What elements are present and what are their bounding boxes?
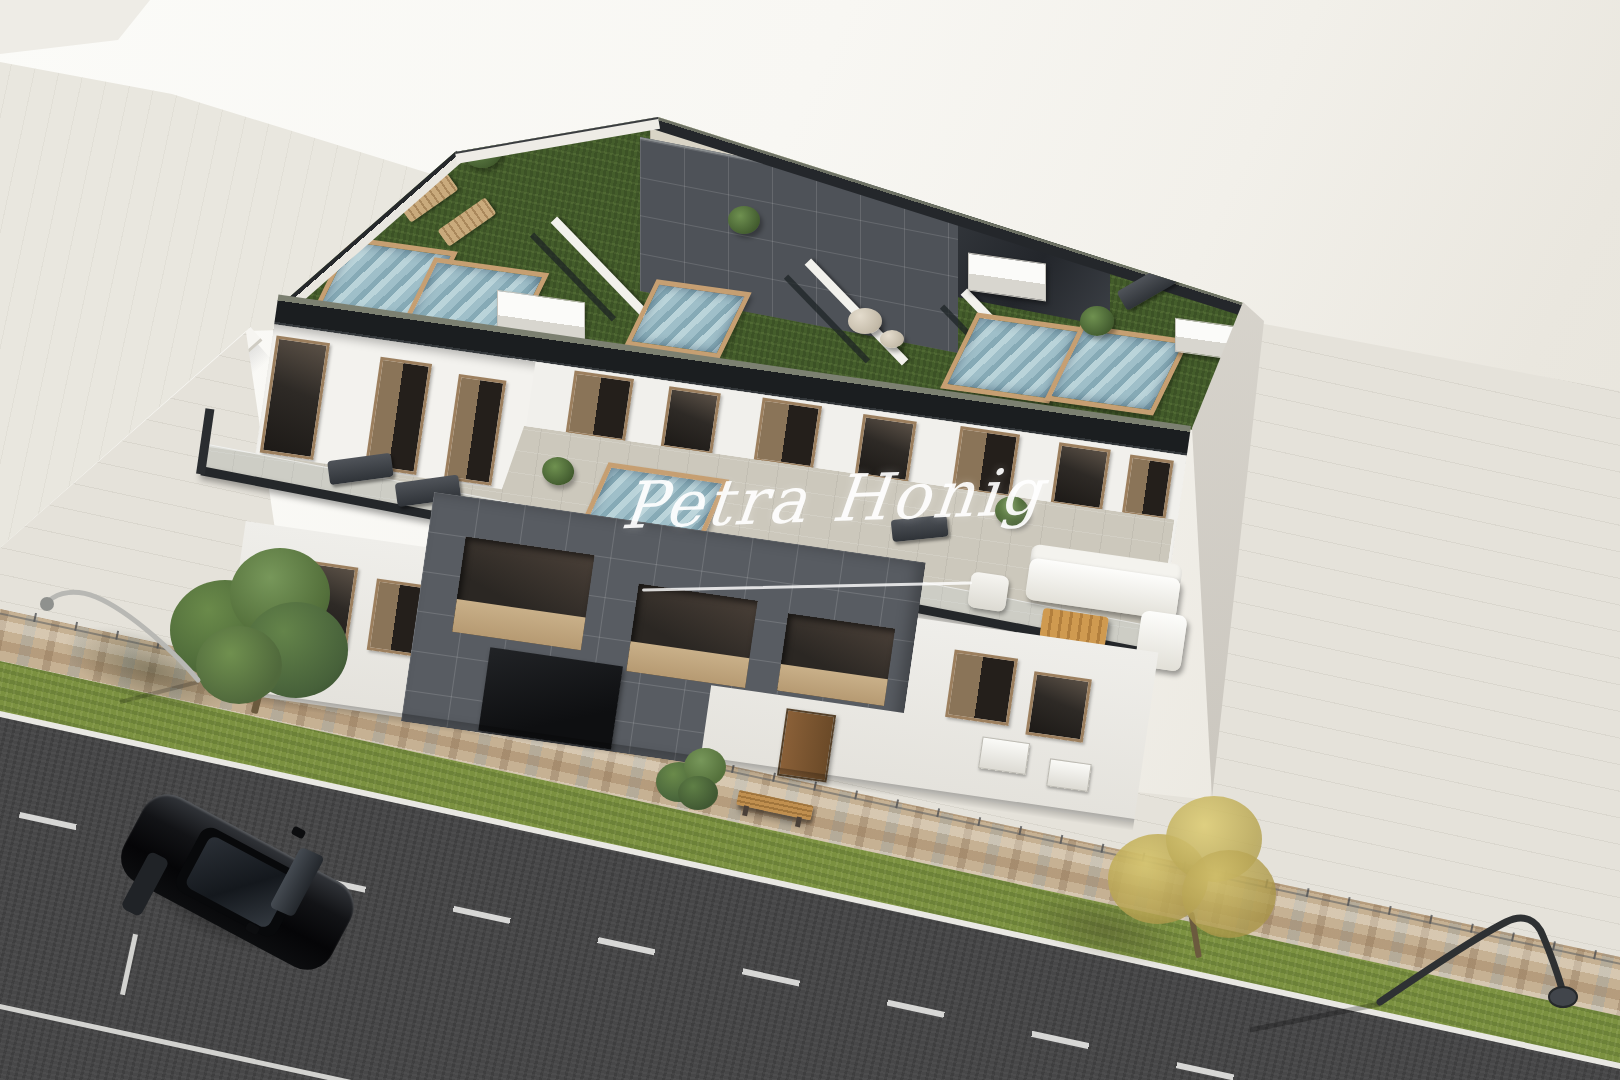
lamp-shadow: [120, 682, 198, 702]
street-lamp-left-pole: [49, 592, 198, 680]
lamp-shadow: [1250, 1004, 1380, 1030]
street-lamp-right-pole: [1380, 918, 1562, 1002]
render-scene: Petra Honig: [0, 0, 1620, 1080]
car-mirror: [291, 825, 307, 839]
street-lamp-left-head: [40, 597, 54, 611]
street-lamp-right-head: [1549, 987, 1577, 1007]
parked-car: [108, 782, 378, 992]
